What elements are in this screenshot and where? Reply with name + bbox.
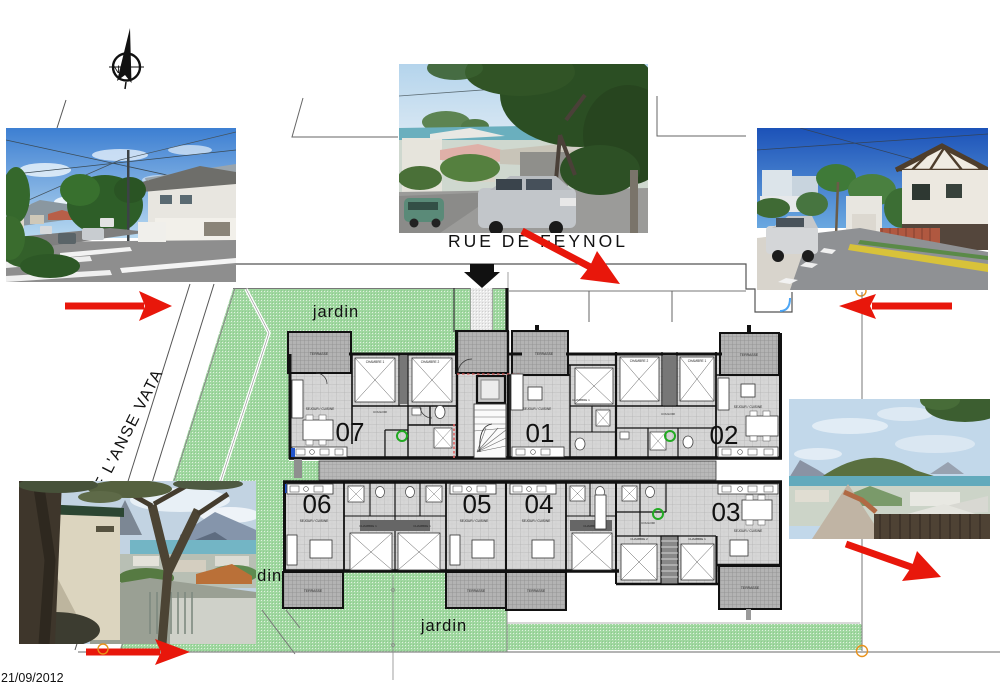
svg-text:TERRASSE: TERRASSE <box>310 352 329 356</box>
svg-text:CHAMBRE 1: CHAMBRE 1 <box>688 359 707 363</box>
svg-text:06: 06 <box>303 489 332 519</box>
svg-text:TERRASSE: TERRASSE <box>527 589 546 593</box>
svg-text:CHAMBRE 2: CHAMBRE 2 <box>630 359 649 363</box>
svg-text:03: 03 <box>712 497 741 527</box>
svg-text:05: 05 <box>463 489 492 519</box>
svg-text:CHAMBRE 2: CHAMBRE 2 <box>630 537 648 541</box>
svg-text:CHAMBRE 1: CHAMBRE 1 <box>359 524 377 528</box>
svg-text:SEJOUR / CUISINE: SEJOUR / CUISINE <box>300 519 329 523</box>
svg-text:21/09/2012: 21/09/2012 <box>1 671 64 685</box>
svg-text:04: 04 <box>525 489 554 519</box>
svg-text:COULOIR: COULOIR <box>641 521 656 525</box>
svg-text:TERRASSE: TERRASSE <box>535 352 554 356</box>
svg-text:TERRASSE: TERRASSE <box>467 589 486 593</box>
svg-text:01: 01 <box>526 418 555 448</box>
svg-text:jardin: jardin <box>312 303 359 321</box>
svg-text:COULOIR: COULOIR <box>373 410 388 414</box>
svg-text:CHAMBRE 1: CHAMBRE 1 <box>572 398 590 402</box>
svg-text:TERRASSE: TERRASSE <box>740 353 759 357</box>
svg-text:SEJOUR / CUISINE: SEJOUR / CUISINE <box>734 529 763 533</box>
svg-text:TERRASSE: TERRASSE <box>304 589 323 593</box>
svg-text:CHAMBRE 1: CHAMBRE 1 <box>413 524 431 528</box>
svg-text:CHAMBRE 2: CHAMBRE 2 <box>421 360 440 364</box>
svg-text:jardin: jardin <box>420 617 467 635</box>
svg-text:CHAMBRE 1: CHAMBRE 1 <box>366 360 385 364</box>
svg-text:07: 07 <box>336 417 365 447</box>
svg-text:SEJOUR / CUISINE: SEJOUR / CUISINE <box>734 405 763 409</box>
svg-text:TERRASSE: TERRASSE <box>741 586 760 590</box>
svg-text:SEJOUR / CUISINE: SEJOUR / CUISINE <box>460 519 489 523</box>
svg-text:SEJOUR / CUISINE: SEJOUR / CUISINE <box>522 519 551 523</box>
svg-text:SEJOUR / CUISINE: SEJOUR / CUISINE <box>306 407 335 411</box>
svg-text:CHAMBRE 1: CHAMBRE 1 <box>688 537 706 541</box>
svg-text:02: 02 <box>710 420 739 450</box>
svg-text:SEJOUR / CUISINE: SEJOUR / CUISINE <box>523 407 552 411</box>
svg-text:COULOIR: COULOIR <box>661 412 676 416</box>
